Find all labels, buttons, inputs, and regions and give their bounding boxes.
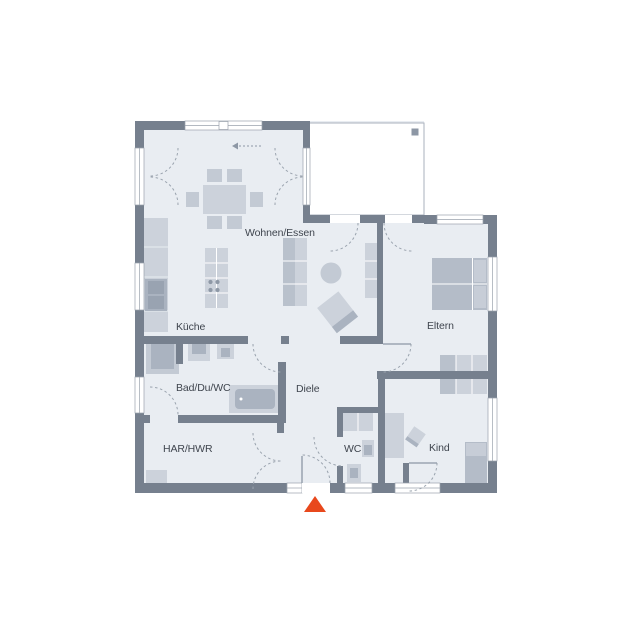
wardrobe-eltern [440, 355, 487, 371]
entrance-marker [304, 496, 326, 512]
room-label-kueche: Küche [176, 321, 206, 333]
pantry-cabinet [283, 238, 307, 306]
floor-plan-page: Wohnen/Essen Küche Eltern Bad/Du/WC Diel… [0, 0, 636, 636]
window [437, 215, 483, 224]
window [135, 377, 144, 413]
room-label-wc: WC [344, 443, 362, 455]
cooktop-burner [208, 280, 212, 284]
sidelight-window [287, 483, 302, 493]
room-label-eltern: Eltern [427, 320, 454, 332]
double-bed [432, 258, 487, 310]
terrace-door-opening [385, 215, 412, 223]
wc-cabinet [343, 412, 373, 431]
washbasin [188, 344, 210, 361]
cooktop-burner [215, 288, 219, 292]
single-bed [465, 442, 487, 487]
floor-cutout [424, 121, 497, 215]
room-label-har-hwr: HAR/HWR [163, 443, 213, 455]
french-door-west [135, 148, 144, 205]
floor-plan: Wohnen/Essen Küche Eltern Bad/Du/WC Diel… [0, 0, 636, 636]
wardrobe-kind [440, 379, 487, 394]
window [488, 398, 497, 461]
dining-chair [227, 169, 242, 182]
toilet [217, 344, 234, 359]
kitchen-island [205, 248, 228, 308]
room-label-diele: Diele [296, 383, 320, 395]
window-symbol [219, 122, 228, 130]
kitchen-counter [144, 218, 168, 332]
window [395, 483, 440, 493]
dining-table [203, 185, 246, 214]
window [488, 257, 497, 311]
french-door-terrace [303, 148, 310, 205]
dining-chair [227, 216, 242, 229]
pillow [474, 286, 486, 308]
terrace-door-opening [330, 215, 360, 223]
room-label-kind: Kind [429, 442, 450, 454]
dining-chair [186, 192, 199, 207]
window [345, 483, 372, 493]
bathtub [229, 385, 281, 413]
entrance-door-opening [302, 483, 330, 493]
tv-sideboard [365, 243, 377, 298]
cooktop-burner [208, 288, 212, 292]
terrace-outline [306, 123, 424, 215]
dining-chair [207, 216, 222, 229]
terrace-symbol [412, 129, 419, 136]
pillow [474, 260, 486, 282]
pillow [466, 443, 486, 456]
dining-chair [250, 192, 263, 207]
dining-chair [207, 169, 222, 182]
wc-washbasin [347, 464, 361, 482]
coffee-table [321, 263, 342, 284]
room-label-bad-du-wc: Bad/Du/WC [176, 382, 231, 394]
cooktop-burner [215, 280, 219, 284]
window [185, 121, 262, 130]
window [135, 263, 144, 310]
room-label-wohnen-essen: Wohnen/Essen [245, 227, 315, 239]
wc-toilet [362, 440, 374, 457]
terrace-area [306, 123, 424, 215]
